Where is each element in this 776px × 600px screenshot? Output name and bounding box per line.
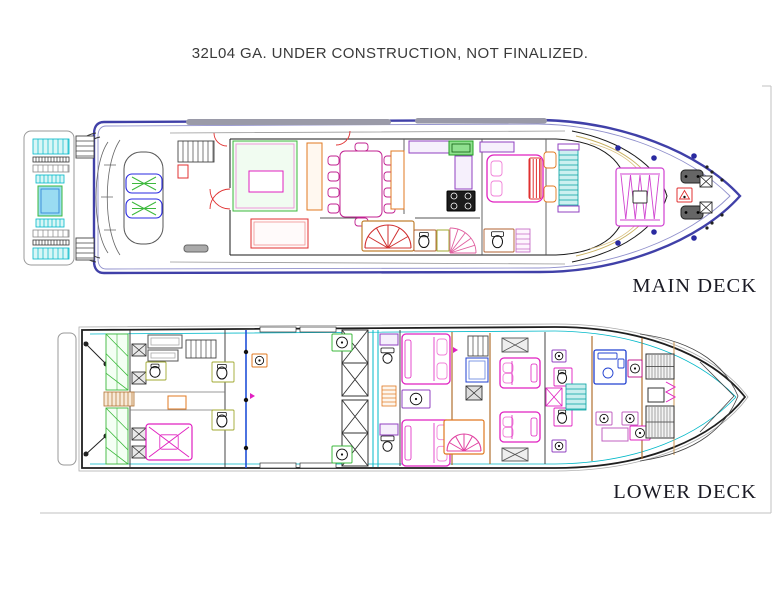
er-door-arrow bbox=[250, 393, 255, 399]
crew-locker-aft-bottom bbox=[106, 408, 128, 464]
main-deck-label: MAIN DECK bbox=[632, 275, 757, 297]
corridor-arrow-1 bbox=[453, 347, 458, 353]
platform-hatch-fwd bbox=[33, 248, 69, 259]
bollard-1 bbox=[615, 145, 621, 151]
helm-console-cap-bottom bbox=[558, 206, 579, 212]
aft-settee-segments bbox=[96, 140, 120, 255]
crew-mess-table bbox=[602, 428, 628, 441]
dining-chair-1 bbox=[328, 156, 339, 165]
main-deck-features bbox=[24, 131, 724, 265]
helm-console bbox=[559, 150, 578, 206]
bow-hatch-box bbox=[648, 388, 664, 402]
bow-fitting-1 bbox=[705, 165, 708, 168]
lower-spiral-stairs bbox=[444, 420, 484, 454]
bow-chock-port bbox=[700, 176, 712, 187]
er-heat-exchanger bbox=[252, 354, 267, 367]
vip-head-bottom bbox=[554, 408, 572, 426]
day-head-cabinet bbox=[437, 230, 449, 251]
tender bbox=[38, 186, 62, 216]
crew-cabinet-3 bbox=[132, 428, 146, 440]
crew-head-aft bbox=[146, 362, 166, 380]
stern-stairs-stbd bbox=[76, 238, 94, 260]
guest-bath-sink-1 bbox=[380, 334, 398, 345]
bow-fitting-6 bbox=[720, 213, 723, 216]
salon-aft-door-arc bbox=[210, 189, 230, 209]
dining-chair-3 bbox=[328, 188, 339, 197]
coffee-table bbox=[249, 171, 283, 192]
salon-spiral-stairs bbox=[362, 221, 414, 251]
laundry-unit bbox=[628, 360, 642, 377]
crew-table bbox=[168, 396, 186, 409]
platform-locker-aft bbox=[36, 175, 64, 183]
vip-sink-bottom bbox=[552, 440, 566, 452]
crew-cabinet-2 bbox=[132, 372, 146, 384]
master-bed bbox=[487, 155, 543, 202]
aft-deck-mat bbox=[184, 245, 208, 252]
platform-ladder-fwd bbox=[33, 230, 69, 237]
anchor-box bbox=[677, 188, 692, 202]
tv-cabinet bbox=[307, 143, 322, 210]
er-vent-2 bbox=[300, 327, 336, 332]
foredeck-sunpad bbox=[616, 168, 664, 226]
galley-sideboard bbox=[391, 151, 404, 209]
guest-bath-sink-2 bbox=[380, 424, 398, 435]
crew-mess-seat-2 bbox=[622, 412, 638, 425]
bow-fitting-3 bbox=[705, 226, 708, 229]
crew-cabinet-4 bbox=[132, 446, 146, 458]
crew-bunk-upper bbox=[148, 335, 182, 348]
lower-deck-label: LOWER DECK bbox=[613, 481, 757, 503]
vip-head-top bbox=[554, 368, 572, 386]
bollard-5 bbox=[691, 153, 697, 159]
lobby-stairs bbox=[450, 228, 476, 253]
vip-bed-bottom bbox=[500, 412, 540, 442]
bollard-4 bbox=[651, 229, 657, 235]
platform-ladder-aft bbox=[33, 165, 69, 172]
lobby-cabinet-blue bbox=[466, 358, 488, 382]
platform-hatch bbox=[33, 139, 69, 154]
transom-platform bbox=[58, 333, 76, 465]
companionway bbox=[566, 384, 586, 410]
master-shower bbox=[516, 229, 530, 252]
helm-console-cap-top bbox=[558, 144, 579, 150]
lower-deck-plan: LOWER DECK bbox=[58, 324, 757, 503]
vip-shower bbox=[546, 388, 562, 406]
er-vent-3 bbox=[260, 463, 296, 468]
crew-bunk-lower bbox=[148, 350, 178, 361]
bow-shelf-bottom bbox=[646, 406, 674, 438]
aft-settee bbox=[124, 152, 163, 244]
dining-chair-4 bbox=[328, 204, 339, 213]
helm-seat-stbd bbox=[544, 186, 556, 202]
window-band-aft bbox=[186, 119, 391, 125]
er-pump-top bbox=[332, 334, 352, 351]
aft-deck-box bbox=[178, 165, 188, 178]
lobby-stairs-fwd bbox=[468, 336, 488, 356]
bow-fitting-4 bbox=[710, 221, 713, 224]
lobby-cabinet-x bbox=[466, 386, 482, 400]
er-bulkhead-cyan-pair bbox=[373, 330, 378, 467]
helm-seat-port bbox=[544, 152, 556, 168]
salon-sofa-aft bbox=[251, 219, 308, 248]
galley-plant bbox=[449, 141, 473, 155]
master-wardrobe bbox=[480, 142, 514, 152]
vip-wardrobe-bottom bbox=[502, 448, 528, 461]
er-pump-bottom bbox=[332, 446, 352, 463]
vip-sink-top bbox=[552, 350, 566, 362]
galley-counter-side bbox=[455, 156, 472, 189]
guest-bath-wc-2 bbox=[381, 436, 394, 451]
er-bulkhead-dot-1 bbox=[244, 350, 248, 354]
galley-stove bbox=[447, 191, 475, 211]
vip-bed-top bbox=[500, 358, 540, 388]
bollard-6 bbox=[691, 235, 697, 241]
day-head bbox=[414, 230, 436, 251]
davit-pin-3 bbox=[84, 452, 89, 457]
crew-head-mid bbox=[212, 362, 234, 382]
er-bulkhead-dot-3 bbox=[244, 446, 248, 450]
er-bulkhead-dot-2 bbox=[244, 398, 248, 402]
stern-stairs-port bbox=[76, 136, 94, 158]
master-head bbox=[484, 229, 514, 252]
crew-locker-aft-top bbox=[106, 334, 128, 390]
dining-chair-2 bbox=[328, 172, 339, 181]
dining-table bbox=[340, 151, 382, 217]
aft-deck-stairs bbox=[178, 141, 214, 162]
bow-shelf-top bbox=[646, 354, 674, 379]
guest-vanity bbox=[402, 390, 430, 408]
guest-bed-fwd bbox=[402, 420, 450, 466]
window-band-fwd bbox=[415, 118, 547, 124]
crew-head-fwd bbox=[212, 410, 234, 430]
platform-tread-aft bbox=[33, 157, 69, 162]
crew-bed bbox=[146, 424, 192, 460]
crew-stairs bbox=[186, 340, 216, 358]
bow-fitting-5 bbox=[720, 178, 723, 181]
lower-deck-features bbox=[58, 330, 675, 466]
crew-mess-seat-1 bbox=[596, 412, 612, 425]
guest-bath-wc-1 bbox=[381, 348, 394, 363]
bollard-3 bbox=[615, 240, 621, 246]
er-vent-1 bbox=[260, 327, 296, 332]
crew-cabinet-1 bbox=[132, 344, 146, 356]
vip-wardrobe-top bbox=[502, 338, 528, 352]
ga-drawing: 32L04 GA. UNDER CONSTRUCTION, NOT FINALI… bbox=[0, 0, 776, 600]
aft-cushion-stbd bbox=[126, 199, 162, 218]
platform-tread-fwd bbox=[33, 240, 69, 245]
er-vent-4 bbox=[300, 463, 336, 468]
laundry-washer bbox=[594, 350, 626, 384]
bow-chock-stbd bbox=[700, 202, 712, 213]
dining-chair-head bbox=[355, 143, 368, 151]
drawing-title: 32L04 GA. UNDER CONSTRUCTION, NOT FINALI… bbox=[192, 45, 589, 62]
davit-pin-1 bbox=[84, 342, 89, 347]
aft-cushion-port bbox=[126, 174, 162, 193]
main-deck-plan: MAIN DECK bbox=[24, 118, 757, 297]
platform-locker-fwd bbox=[36, 219, 64, 227]
bollard-2 bbox=[651, 155, 657, 161]
guest-bed-aft bbox=[402, 334, 450, 384]
bow-fitting-2 bbox=[710, 170, 713, 173]
ga-drawing-page: 32L04 GA. UNDER CONSTRUCTION, NOT FINALI… bbox=[0, 0, 776, 600]
guest-bath-cabinet bbox=[382, 386, 396, 406]
crew-ladder bbox=[104, 392, 134, 406]
